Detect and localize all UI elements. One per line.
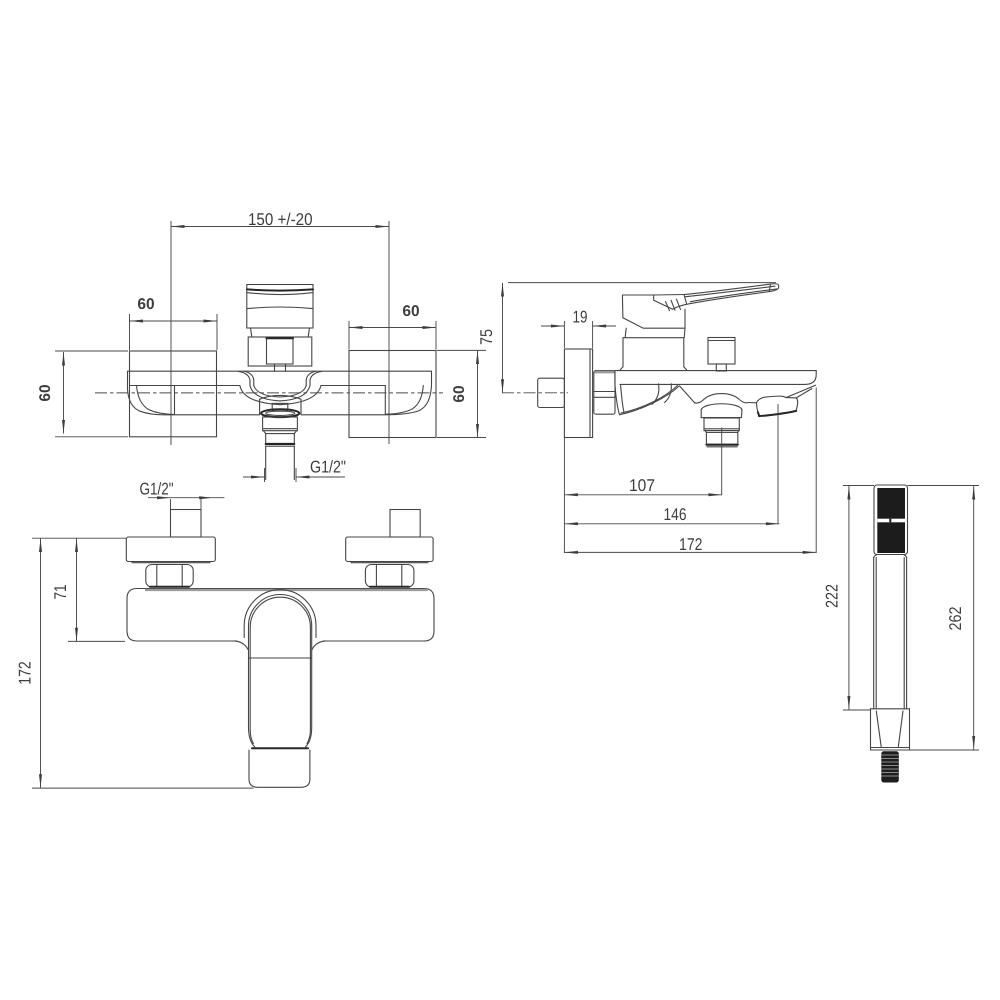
svg-text:262: 262 <box>946 607 965 631</box>
svg-text:G1/2": G1/2" <box>140 480 174 499</box>
svg-text:60: 60 <box>37 384 54 401</box>
svg-text:172: 172 <box>16 661 35 685</box>
svg-text:G1/2": G1/2" <box>310 458 346 477</box>
svg-text:60: 60 <box>137 296 154 313</box>
svg-text:19: 19 <box>573 308 588 327</box>
svg-text:75: 75 <box>477 329 496 345</box>
svg-text:150 +/-20: 150 +/-20 <box>248 210 313 229</box>
svg-text:222: 222 <box>823 584 842 608</box>
svg-text:146: 146 <box>664 505 687 524</box>
svg-text:107: 107 <box>629 476 655 495</box>
svg-text:60: 60 <box>451 385 468 402</box>
svg-text:172: 172 <box>679 535 703 554</box>
svg-text:60: 60 <box>402 303 419 320</box>
svg-text:71: 71 <box>51 585 70 600</box>
